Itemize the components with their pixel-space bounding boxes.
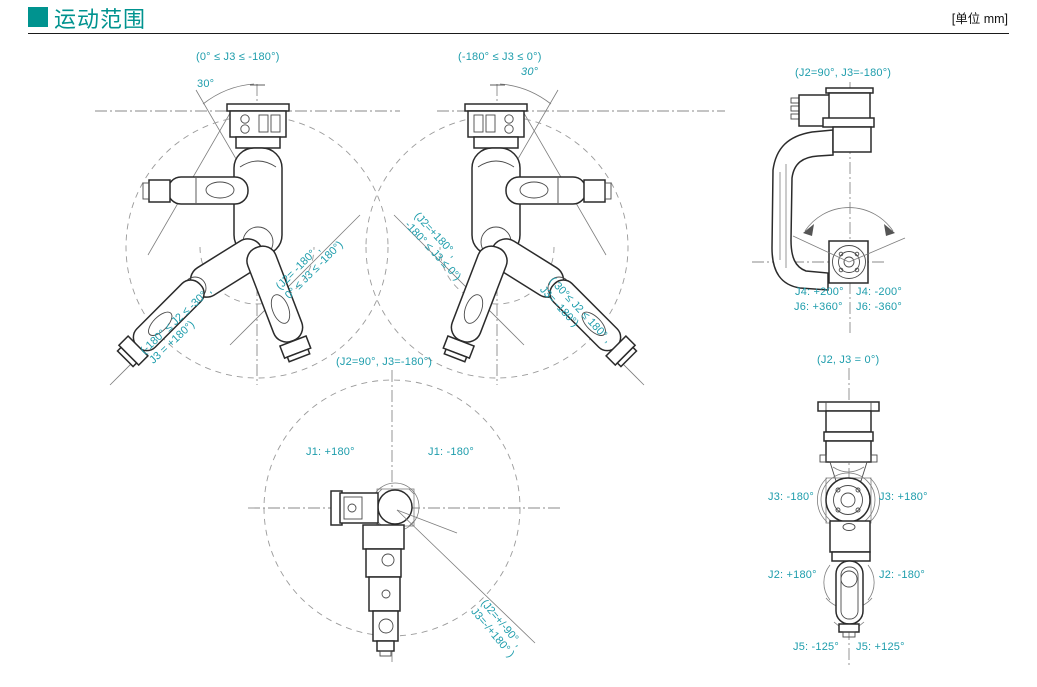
- j3-minus-label: J3: -180°: [768, 491, 814, 503]
- j2-minus-label: J2: -180°: [879, 569, 925, 581]
- front-view-j2-j3-j5: [817, 368, 879, 668]
- j6-minus-label: J6: -360°: [856, 301, 902, 313]
- motion-range-page: 运动范围 [单位 mm]: [0, 0, 1037, 687]
- caption-top-right: (J2=90°, J3=-180°): [795, 67, 891, 79]
- j1-plus-label: J1: +180°: [306, 446, 355, 458]
- angle-label-top-left: 30°: [197, 78, 214, 90]
- top-view-j1: [248, 370, 563, 663]
- pose-diagram-j3-negative: [95, 84, 400, 385]
- j6-plus-label: J6: +360°: [794, 301, 843, 313]
- j3-plus-label: J3: +180°: [879, 491, 928, 503]
- caption-bottom-middle: (J2=90°, J3=-180°): [336, 356, 432, 368]
- j2-plus-label: J2: +180°: [768, 569, 817, 581]
- angle-label-top-middle: 30°: [521, 66, 538, 78]
- j5-plus-label: J5: +125°: [856, 641, 905, 653]
- caption-top-left: (0° ≤ J3 ≤ -180°): [196, 51, 280, 63]
- j4-minus-label: J4: -200°: [856, 286, 902, 298]
- caption-top-middle: (-180° ≤ J3 ≤ 0°): [458, 51, 542, 63]
- caption-bottom-right: (J2, J3 = 0°): [817, 354, 879, 366]
- j5-minus-label: J5: -125°: [793, 641, 839, 653]
- j4-plus-label: J4: +200°: [795, 286, 844, 298]
- j1-minus-label: J1: -180°: [428, 446, 474, 458]
